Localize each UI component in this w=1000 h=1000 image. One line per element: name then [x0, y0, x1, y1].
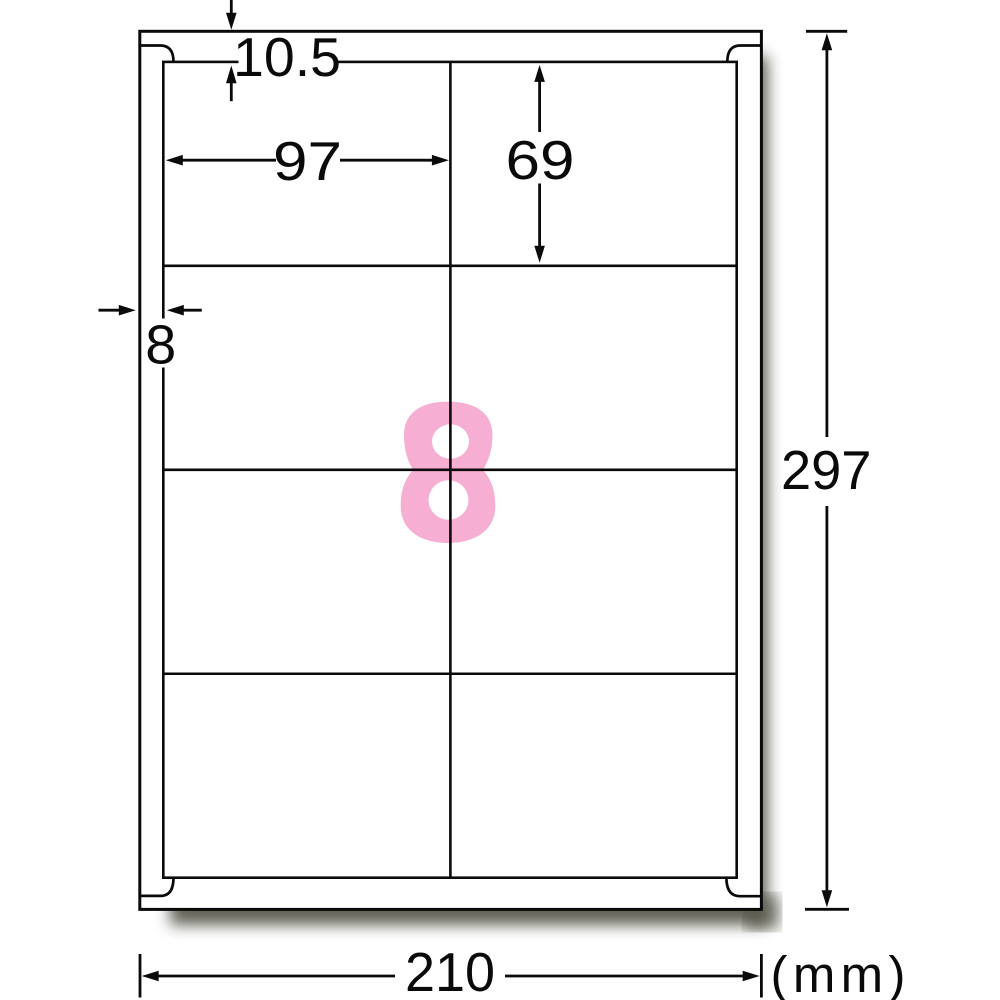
svg-text:297: 297 — [781, 439, 872, 501]
svg-text:210: 210 — [405, 941, 495, 1000]
svg-text:97: 97 — [273, 130, 342, 192]
svg-text:10.5: 10.5 — [233, 26, 341, 88]
svg-text:8: 8 — [145, 314, 176, 376]
svg-text:69: 69 — [506, 129, 575, 191]
